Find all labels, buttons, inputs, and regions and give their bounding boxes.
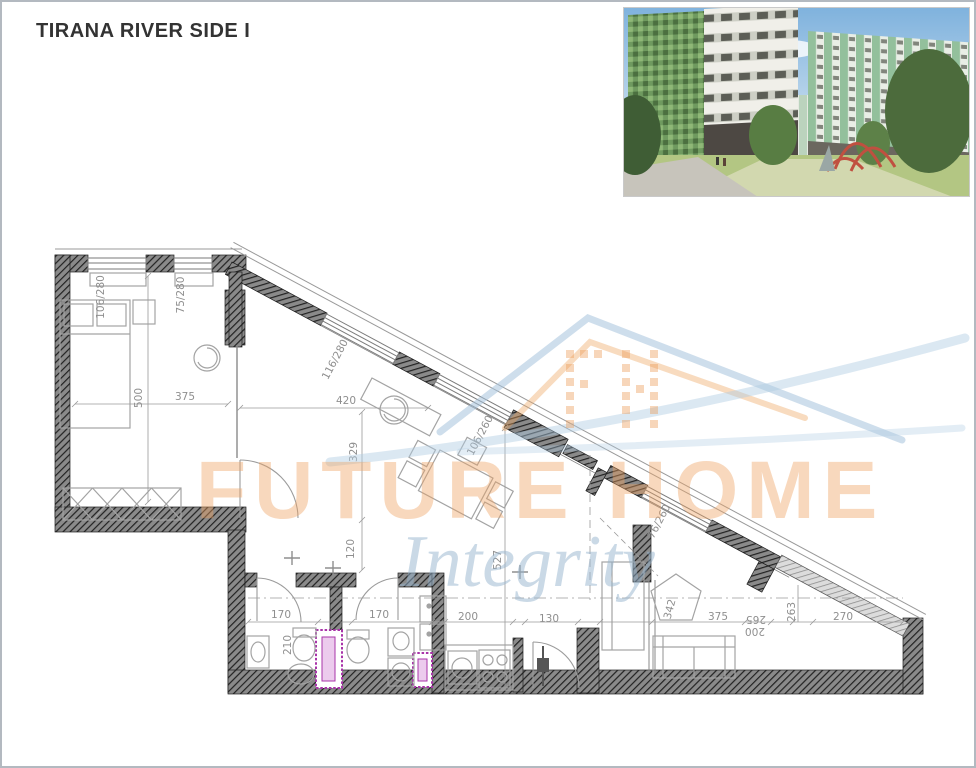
dimension-label: 270 xyxy=(833,611,853,623)
dimension-label: 375 xyxy=(175,391,195,403)
entry-marker xyxy=(537,658,549,672)
dimension-label: 75/280 xyxy=(175,277,187,314)
balcony-door xyxy=(563,445,598,470)
floor-plan-page: TIRANA RIVER SIDE I xyxy=(0,0,976,768)
dimension-label: 527 xyxy=(492,550,504,570)
dining-set xyxy=(397,418,525,531)
side-table xyxy=(651,574,701,620)
dimension-label: 76/260 xyxy=(645,502,673,540)
dimension-label: 106/260 xyxy=(465,414,496,458)
ceiling-lamp xyxy=(194,345,220,371)
dimension-label: 420 xyxy=(336,395,356,407)
dimension-label: 120 xyxy=(345,539,357,559)
nightstand xyxy=(133,300,155,324)
dimension-label: 200 xyxy=(745,625,765,637)
dimension-label: 170 xyxy=(271,609,291,621)
wall-diagonal xyxy=(206,242,926,665)
dimension-label: 500 xyxy=(133,388,145,408)
ceiling-lamp xyxy=(380,396,408,424)
dimension-label: 265 xyxy=(746,613,766,625)
dimension-label: 329 xyxy=(348,442,360,462)
dimension-label: 200 xyxy=(458,611,478,623)
bath-sink xyxy=(247,636,269,668)
dimension-label: 116/280 xyxy=(320,338,351,382)
dimension-label: 342 xyxy=(662,598,679,620)
dimension-label: 106/280 xyxy=(95,275,107,319)
dimension-label: 375 xyxy=(708,611,728,623)
dimension-label: 170 xyxy=(369,609,389,621)
walls-outer xyxy=(55,249,923,694)
toilet xyxy=(347,637,369,663)
dimension-label: 210 xyxy=(282,635,294,655)
toilet xyxy=(293,635,315,661)
dimension-lines xyxy=(72,273,906,691)
floor-plan: 106/28075/280116/280106/26076/2605003754… xyxy=(0,0,976,768)
bath-sink xyxy=(393,632,409,650)
dimension-label: 263 xyxy=(786,602,798,622)
dimension-label: 130 xyxy=(539,613,559,625)
